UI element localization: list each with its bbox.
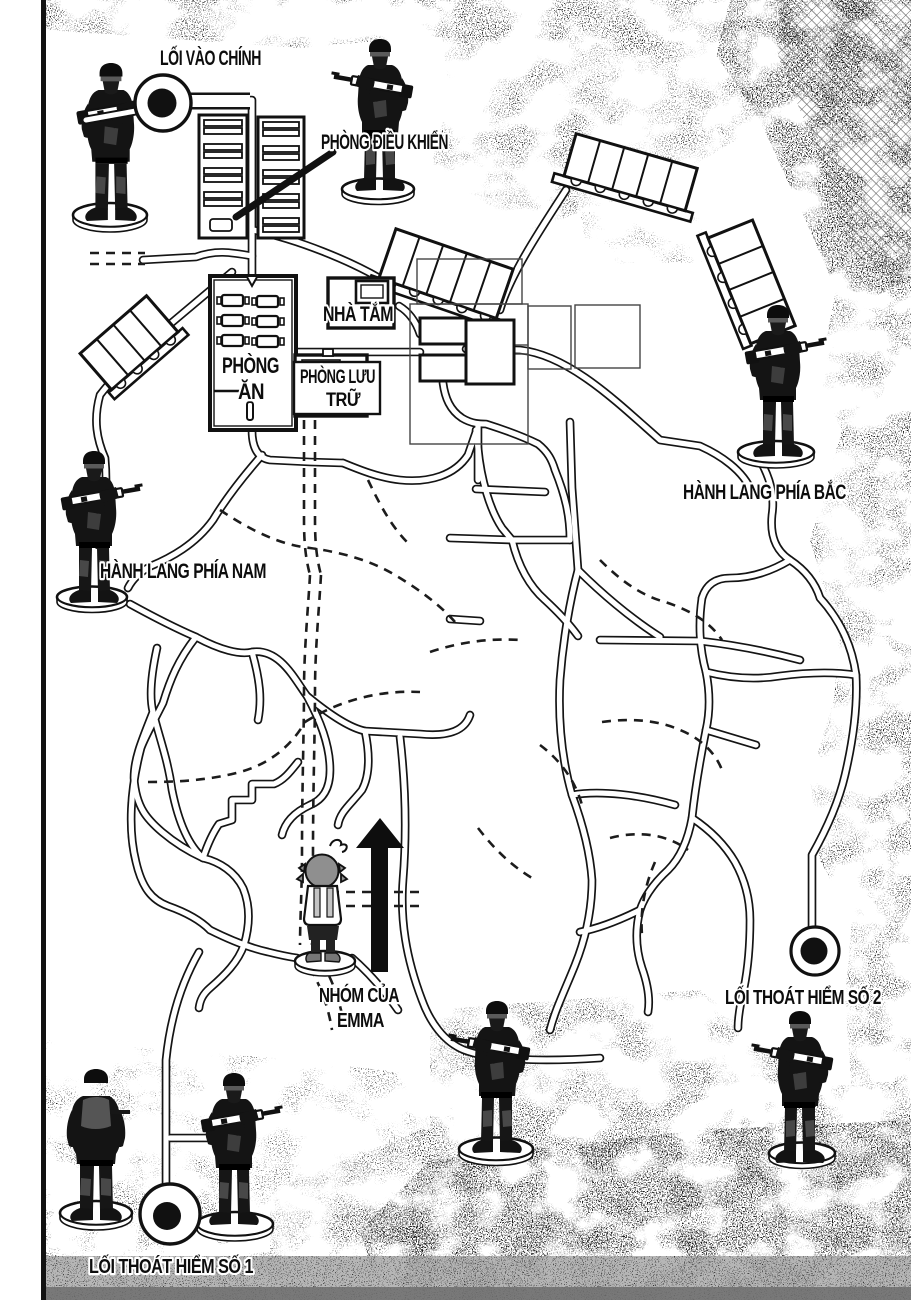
svg-text:ĂN: ĂN (238, 379, 264, 404)
svg-text:NHÓM CỦA: NHÓM CỦA (319, 983, 399, 1007)
svg-text:LỐI THOÁT HIỂM SỐ 2: LỐI THOÁT HIỂM SỐ 2 (725, 985, 881, 1009)
svg-text:PHÒNG ĐIỀU KHIỂN: PHÒNG ĐIỀU KHIỂN (321, 130, 448, 154)
svg-text:TRỮ: TRỮ (326, 389, 361, 411)
svg-text:NHÀ TẮM: NHÀ TẮM (323, 302, 393, 326)
svg-text:HÀNH LANG PHÍA NAM: HÀNH LANG PHÍA NAM (100, 560, 266, 583)
svg-text:LỐI THOÁT HIỂM SỐ 1: LỐI THOÁT HIỂM SỐ 1 (89, 1254, 253, 1278)
svg-text:HÀNH LANG PHÍA BẮC: HÀNH LANG PHÍA BẮC (683, 480, 846, 504)
svg-text:PHÒNG: PHÒNG (222, 353, 279, 378)
svg-text:LỐI VÀO CHÍNH: LỐI VÀO CHÍNH (160, 46, 261, 70)
svg-text:EMMA: EMMA (337, 1010, 384, 1032)
svg-text:PHÒNG LƯU: PHÒNG LƯU (300, 366, 375, 388)
